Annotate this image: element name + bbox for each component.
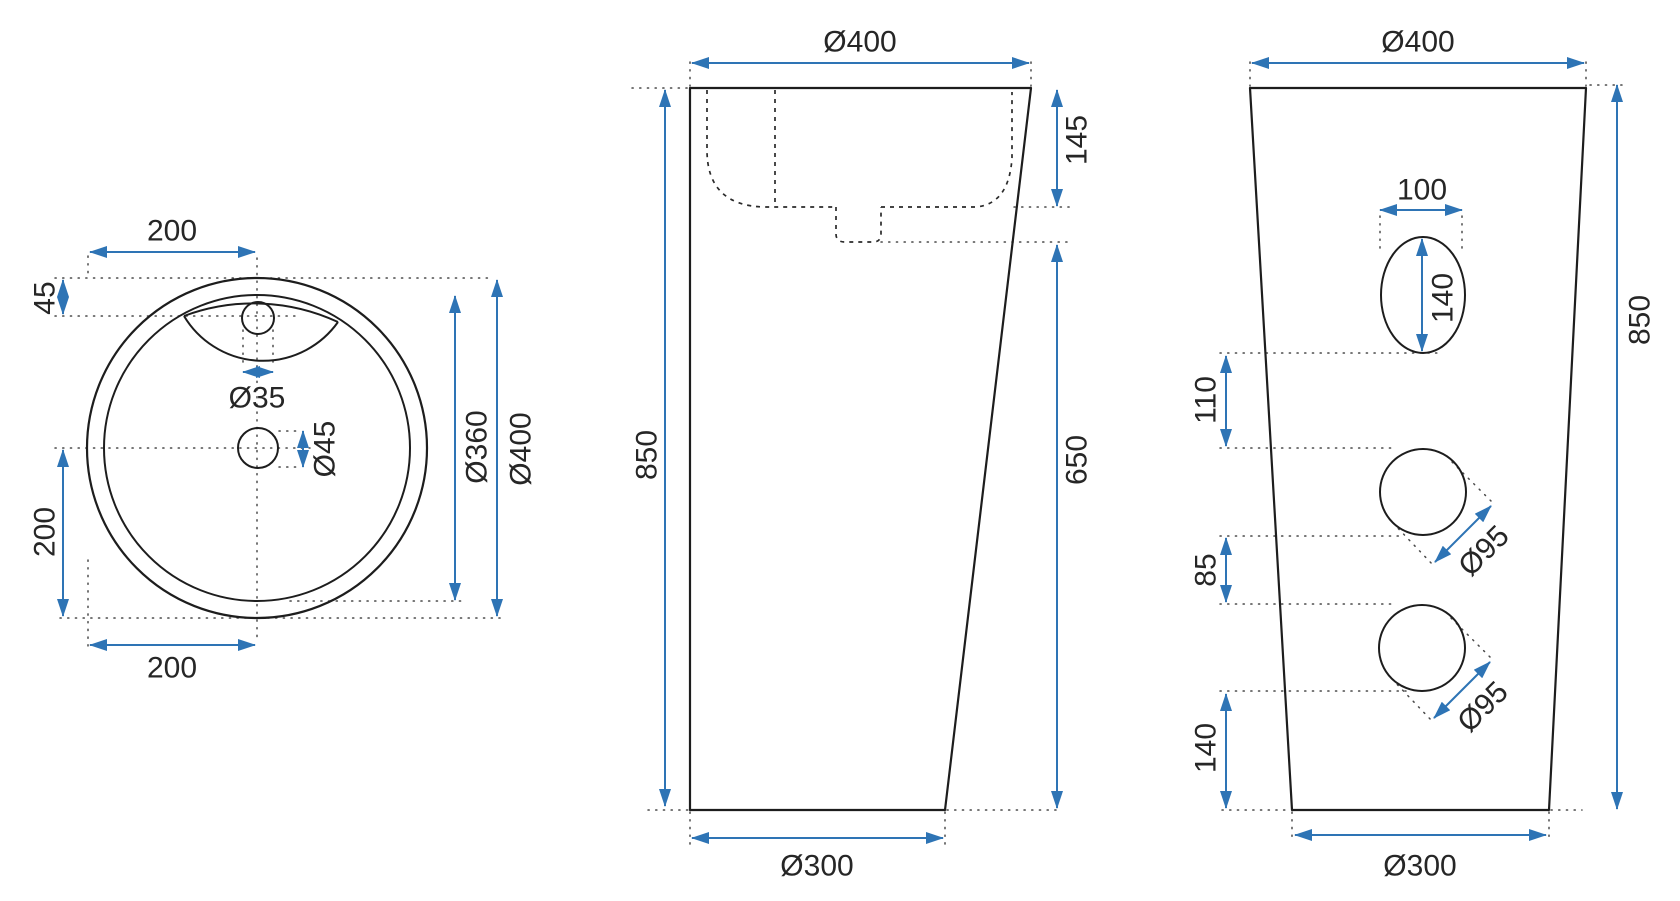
round-hole-upper [1380,449,1466,535]
dim-label-outer-diameter: Ø400 [505,412,538,485]
technical-drawing-sheet: 200 45 Ø35 Ø45 200 200 Ø360 Ø400 [0,0,1680,901]
top-view-construction-lines [55,256,504,650]
dim-label-hole1-diameter: Ø95 [1452,519,1515,582]
dim-label-front-base-diameter: Ø300 [780,850,853,883]
dim-label-front-total-height: 850 [631,430,664,480]
front-view-construction-lines [632,62,1070,846]
dim-label-faucet-hole: Ø35 [229,382,286,415]
dim-label-hole2-diameter: Ø95 [1451,675,1514,738]
round-hole-lower [1379,605,1465,691]
dim-label-hole1-to-hole2: 85 [1190,553,1223,586]
dim-label-lower-height: 650 [1061,435,1094,485]
dim-label-faucet-offset: 45 [29,281,62,314]
faucet-deck-lower-edge [184,316,338,361]
dim-label-bottom-width: 200 [147,652,197,685]
dim-label-top-width: 200 [147,215,197,248]
faucet-hole [242,302,274,334]
dim-label-oval-height: 140 [1427,273,1460,323]
dim-label-hole2-to-base: 140 [1190,723,1223,773]
dim-label-center-to-edge: 200 [29,507,62,557]
dim-label-drain-hole: Ø45 [309,421,342,478]
top-view: 200 45 Ø35 Ø45 200 200 Ø360 Ø400 [29,215,538,685]
dim-label-side-base-diameter: Ø300 [1383,850,1456,883]
front-view: Ø400 145 850 650 Ø300 [631,26,1094,883]
pedestal-body-front [690,88,1031,810]
drawing-svg: 200 45 Ø35 Ø45 200 200 Ø360 Ø400 [0,0,1680,901]
dim-label-inner-diameter: Ø360 [461,410,494,483]
side-view: Ø400 100 140 110 Ø95 85 Ø95 140 850 Ø300 [1190,26,1657,883]
dim-label-front-top-diameter: Ø400 [823,26,896,59]
dim-label-oval-width: 100 [1397,174,1447,207]
dim-label-side-total-height: 850 [1624,295,1657,345]
dim-label-side-top-diameter: Ø400 [1381,26,1454,59]
dim-label-bowl-depth: 145 [1061,115,1094,165]
dim-label-oval-to-hole1: 110 [1190,376,1223,424]
front-view-dimension-lines [665,63,1057,838]
bowl-hidden-contour [707,90,1012,242]
